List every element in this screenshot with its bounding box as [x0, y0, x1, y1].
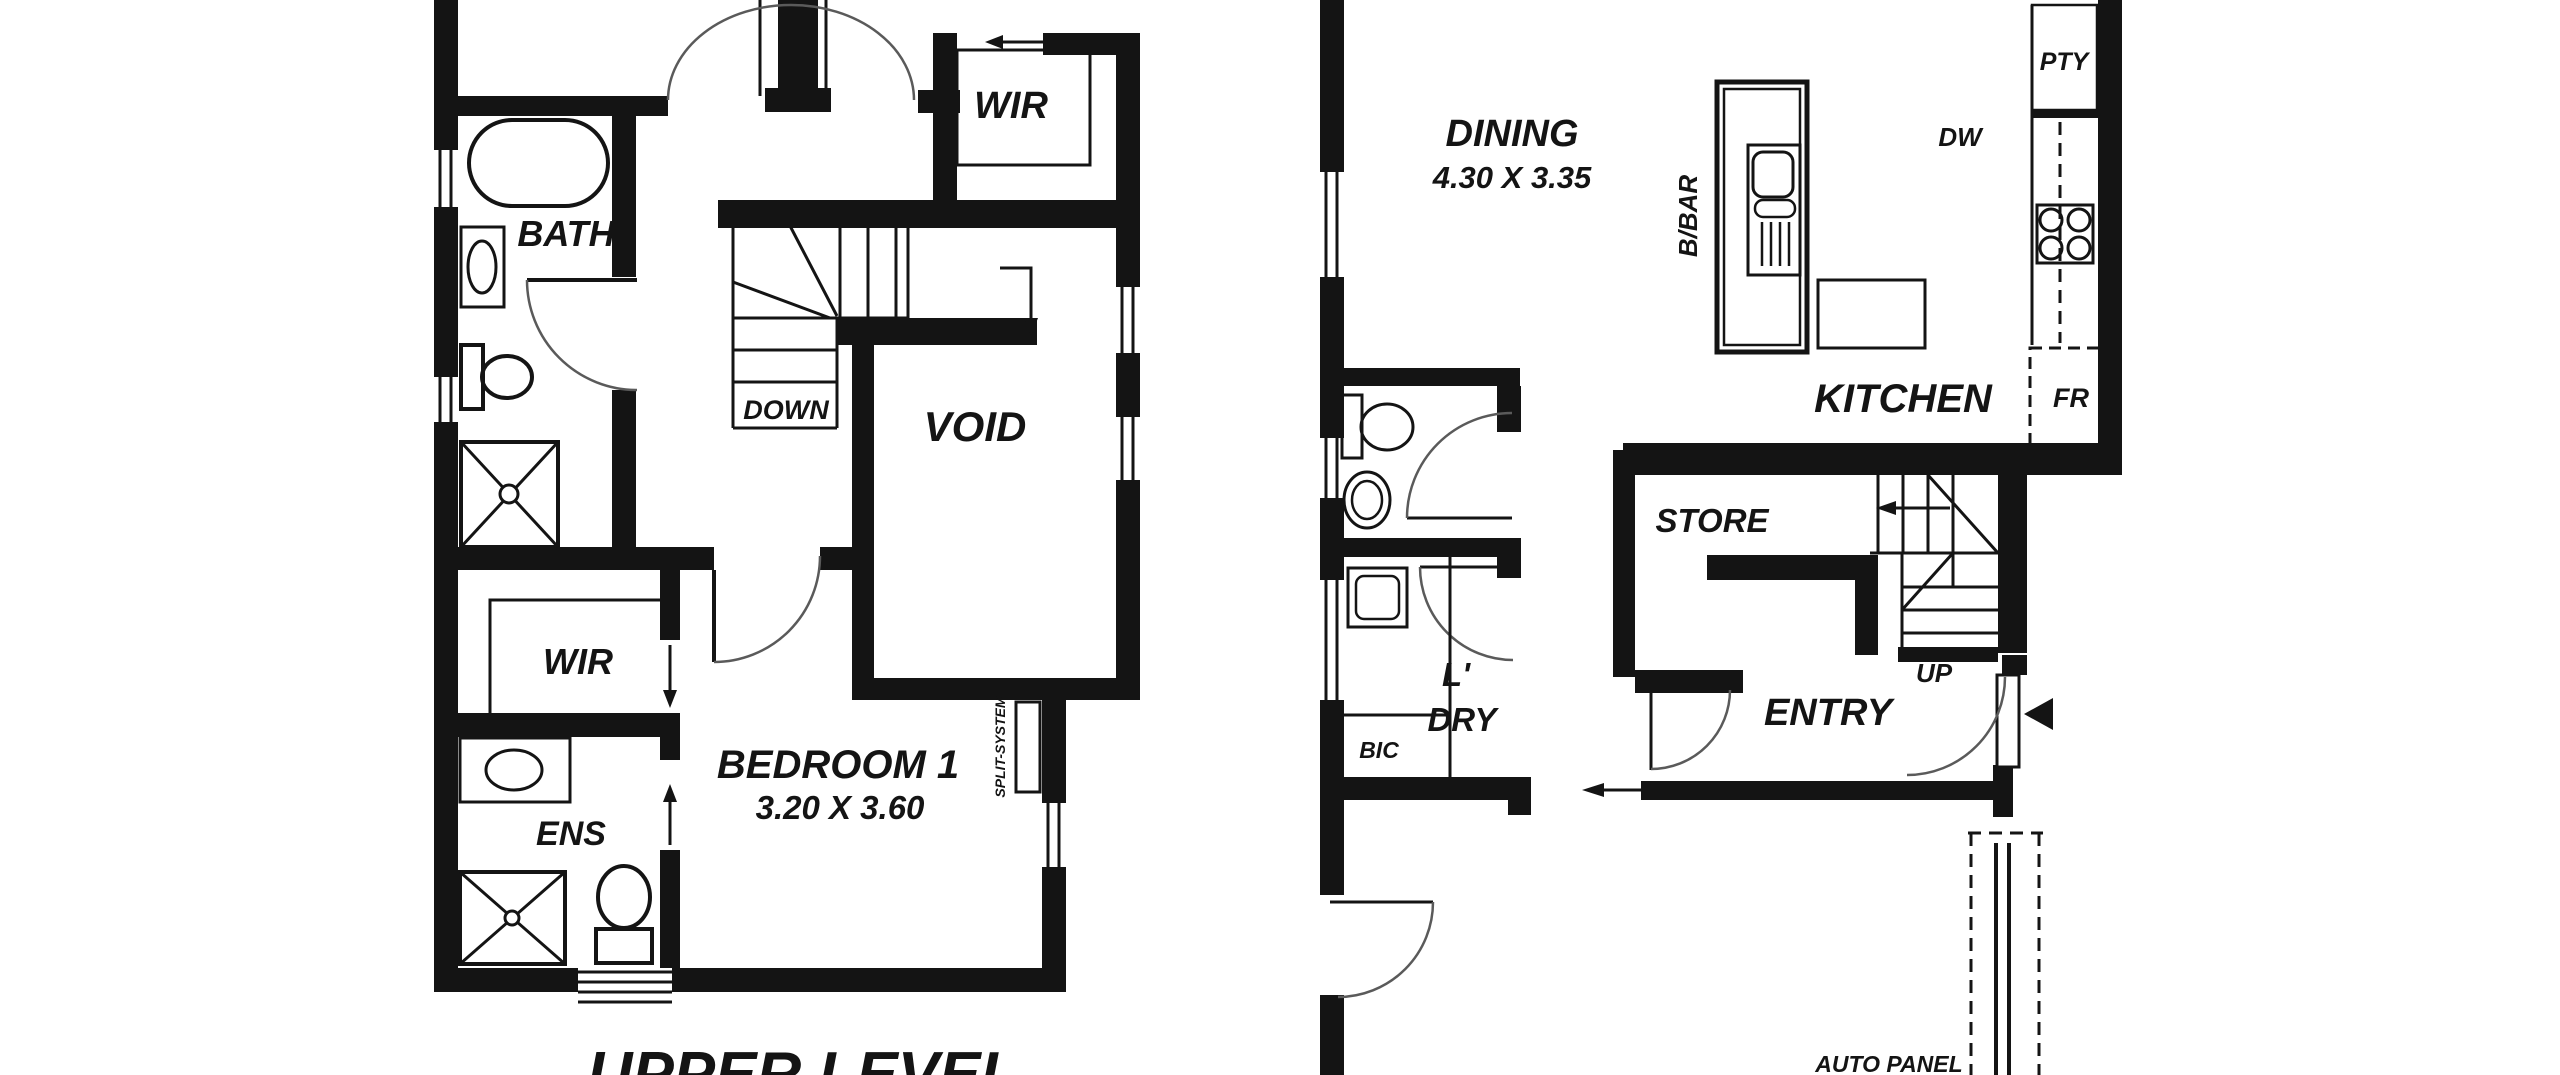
room-label-wir-top: WIR [974, 85, 1048, 127]
label-bbar: B/BAR [1673, 175, 1703, 258]
label-up: UP [1916, 658, 1953, 688]
room-label-laundry-1: L' [1442, 656, 1471, 693]
laundry-tub [1348, 568, 1407, 627]
bathtub [469, 120, 608, 206]
floor-plan-svg: BATH WIR DOWN VOID WIR ENS BEDROOM 1 3.2… [0, 0, 2560, 1075]
dining-dimensions: 4.30 X 3.35 [1432, 160, 1592, 195]
ens-opening-arrow-up [663, 784, 677, 845]
label-pty: PTY [2040, 48, 2091, 76]
room-label-laundry-2: DRY [1427, 701, 1499, 738]
bath-toilet [461, 345, 532, 409]
upper-level-plan: BATH WIR DOWN VOID WIR ENS BEDROOM 1 3.2… [434, 0, 1140, 1075]
bath-vanity [461, 227, 504, 307]
room-label-void: VOID [924, 403, 1027, 450]
label-bic: BIC [1359, 737, 1399, 763]
label-split-system: SPLIT-SYSTEM [992, 696, 1008, 797]
stairs-up [1870, 475, 1998, 647]
powder-basin [1344, 472, 1390, 528]
laundry-door [1420, 567, 1513, 660]
bedroom1-dimensions: 3.20 X 3.60 [756, 789, 925, 826]
powder-door [1407, 413, 1512, 518]
room-label-dining: DINING [1446, 113, 1579, 155]
bath-shower [461, 442, 558, 547]
room-label-kitchen: KITCHEN [1814, 377, 1993, 421]
entry-arrow [2024, 698, 2053, 730]
kitchen-bench-return [1818, 280, 1925, 348]
label-down: DOWN [743, 395, 829, 425]
store-door [1651, 690, 1730, 770]
bath-door [527, 280, 637, 390]
entry-door [1907, 675, 2053, 775]
kitchen-island [1717, 82, 1807, 352]
room-label-wir-lower: WIR [543, 641, 613, 682]
stairs-up-arrow [1876, 501, 1950, 515]
upper-windows [440, 150, 1133, 1002]
powder-toilet [1342, 395, 1413, 458]
split-system-unit [1016, 702, 1040, 792]
ens-shower [460, 872, 565, 964]
bedroom-door [714, 556, 820, 662]
cooktop [2037, 205, 2093, 263]
room-label-bedroom1: BEDROOM 1 [717, 743, 959, 787]
hall-direction-arrow [1582, 783, 1641, 797]
room-label-entry: ENTRY [1764, 692, 1896, 734]
room-label-bath: BATH [517, 213, 615, 254]
side-entry-door [1330, 902, 1433, 997]
label-fr: FR [2053, 383, 2089, 413]
porch-outline [1968, 833, 2043, 1075]
ground-level-plan: DINING 4.30 X 3.35 B/BAR DW PTY KITCHEN … [1320, 0, 2122, 1075]
plan-title-upper-level: UPPER LEVEL [588, 1040, 1019, 1075]
floor-plan-screenshot: BATH WIR DOWN VOID WIR ENS BEDROOM 1 3.2… [0, 0, 2560, 1075]
kitchen-sink [1748, 145, 1800, 275]
room-label-store: STORE [1655, 502, 1769, 539]
label-auto-panel: AUTO PANEL [1814, 1051, 1962, 1075]
ens-vanity [460, 738, 570, 802]
ens-toilet [596, 866, 652, 963]
room-label-ens: ENS [536, 815, 606, 853]
wir-top-arrow [985, 35, 1043, 49]
wir-opening-arrow-down [663, 645, 677, 708]
label-dw: DW [1938, 122, 1984, 152]
